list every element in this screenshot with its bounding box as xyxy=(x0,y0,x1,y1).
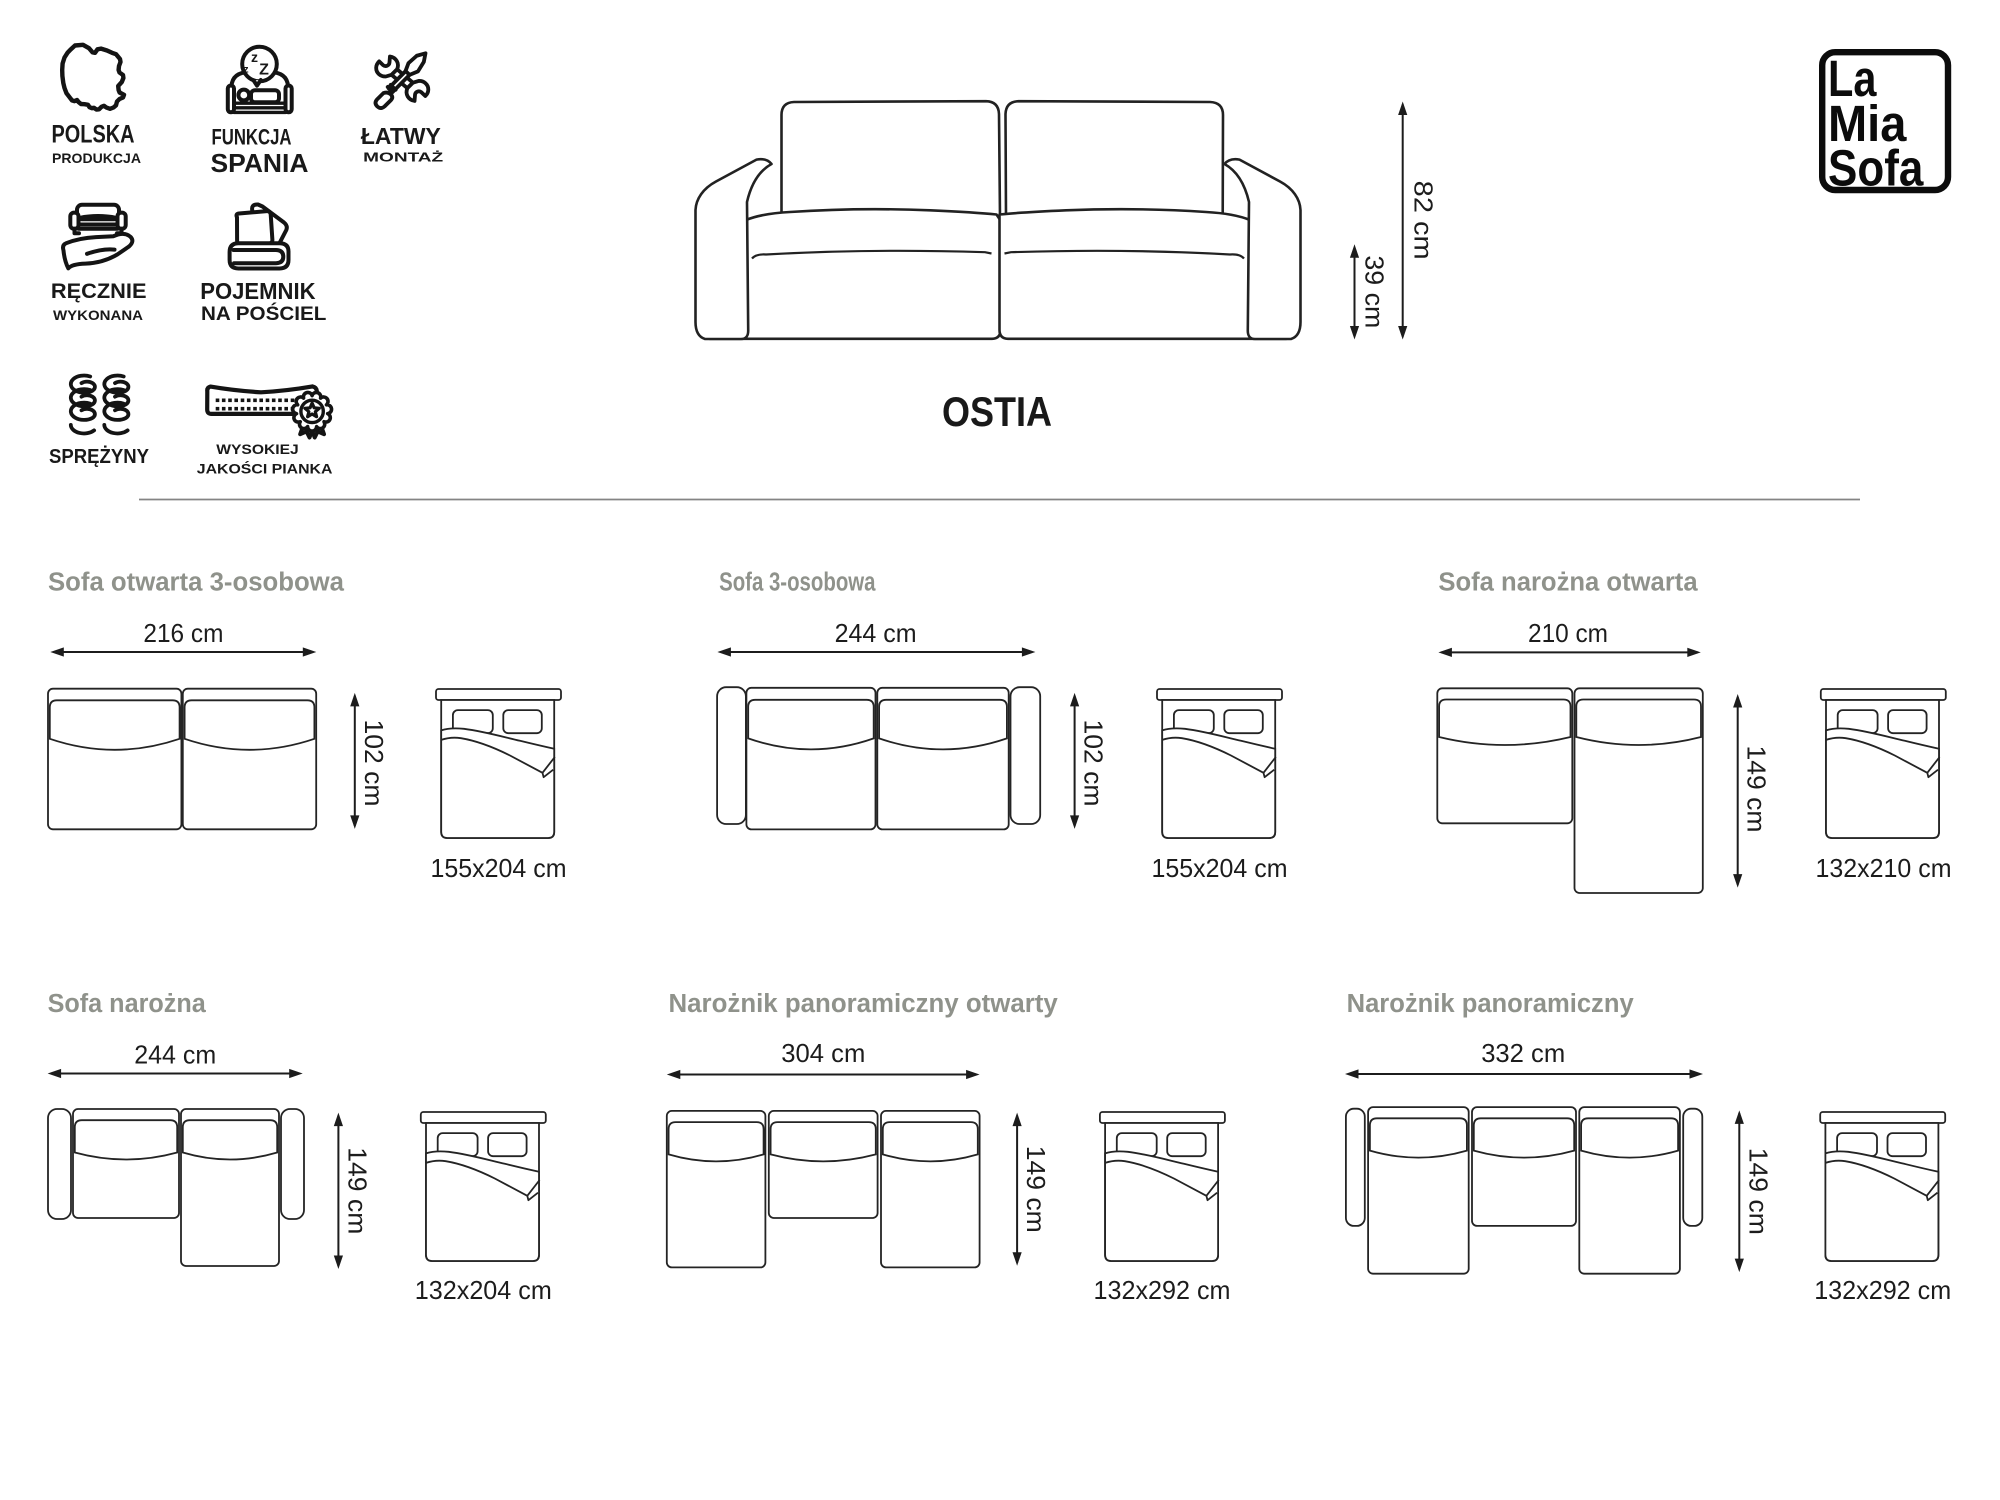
svg-text:RĘCZNIE: RĘCZNIE xyxy=(51,280,147,303)
svg-text:244 cm: 244 cm xyxy=(835,618,917,648)
svg-text:155x204 cm: 155x204 cm xyxy=(431,853,567,883)
svg-text:39 cm: 39 cm xyxy=(1360,255,1390,328)
svg-text:102 cm: 102 cm xyxy=(1079,720,1109,807)
svg-text:Sofa narożna otwarta: Sofa narożna otwarta xyxy=(1438,568,1698,596)
svg-text:304 cm: 304 cm xyxy=(781,1038,865,1068)
svg-text:SPANIA: SPANIA xyxy=(211,148,309,178)
svg-text:JAKOŚCI PIANKA: JAKOŚCI PIANKA xyxy=(197,461,333,476)
svg-text:82 cm: 82 cm xyxy=(1409,181,1439,260)
svg-text:102 cm: 102 cm xyxy=(359,720,389,807)
svg-text:z: z xyxy=(243,64,248,76)
svg-text:POLSKA: POLSKA xyxy=(52,121,135,149)
svg-text:FUNKCJA: FUNKCJA xyxy=(212,124,292,149)
svg-text:NA POŚCIEL: NA POŚCIEL xyxy=(201,303,327,325)
svg-text:155x204 cm: 155x204 cm xyxy=(1152,853,1288,883)
svg-text:149 cm: 149 cm xyxy=(1742,746,1772,833)
svg-text:SPRĘŻYNY: SPRĘŻYNY xyxy=(49,445,150,468)
svg-text:244 cm: 244 cm xyxy=(134,1040,216,1070)
svg-text:Sofa narożna: Sofa narożna xyxy=(48,990,207,1018)
svg-text:z: z xyxy=(251,49,258,65)
svg-text:132x204 cm: 132x204 cm xyxy=(415,1275,552,1305)
svg-text:MONTAŻ: MONTAŻ xyxy=(363,149,443,164)
svg-text:Sofa 3-osobowa: Sofa 3-osobowa xyxy=(719,568,876,596)
svg-text:ŁATWY: ŁATWY xyxy=(361,123,441,149)
svg-text:210 cm: 210 cm xyxy=(1528,618,1608,648)
svg-text:OSTIA: OSTIA xyxy=(942,388,1052,435)
svg-text:132x210 cm: 132x210 cm xyxy=(1816,853,1952,883)
svg-text:POJEMNIK: POJEMNIK xyxy=(200,278,316,304)
svg-text:Z: Z xyxy=(259,62,269,79)
svg-text:149 cm: 149 cm xyxy=(342,1147,372,1234)
svg-text:216 cm: 216 cm xyxy=(143,618,223,648)
svg-text:149 cm: 149 cm xyxy=(1021,1146,1051,1233)
svg-text:332 cm: 332 cm xyxy=(1481,1038,1565,1068)
svg-text:132x292 cm: 132x292 cm xyxy=(1094,1275,1231,1305)
svg-text:Narożnik panoramiczny: Narożnik panoramiczny xyxy=(1347,990,1635,1018)
svg-text:WYSOKIEJ: WYSOKIEJ xyxy=(216,442,299,457)
svg-text:PRODUKCJA: PRODUKCJA xyxy=(52,150,141,166)
svg-text:Narożnik panoramiczny otwarty: Narożnik panoramiczny otwarty xyxy=(669,990,1059,1018)
svg-text:149 cm: 149 cm xyxy=(1743,1148,1773,1235)
svg-text:WYKONANA: WYKONANA xyxy=(53,307,143,323)
svg-text:132x292 cm: 132x292 cm xyxy=(1814,1275,1951,1305)
svg-text:Sofa: Sofa xyxy=(1828,140,1924,197)
svg-text:Sofa otwarta 3-osobowa: Sofa otwarta 3-osobowa xyxy=(48,568,345,596)
